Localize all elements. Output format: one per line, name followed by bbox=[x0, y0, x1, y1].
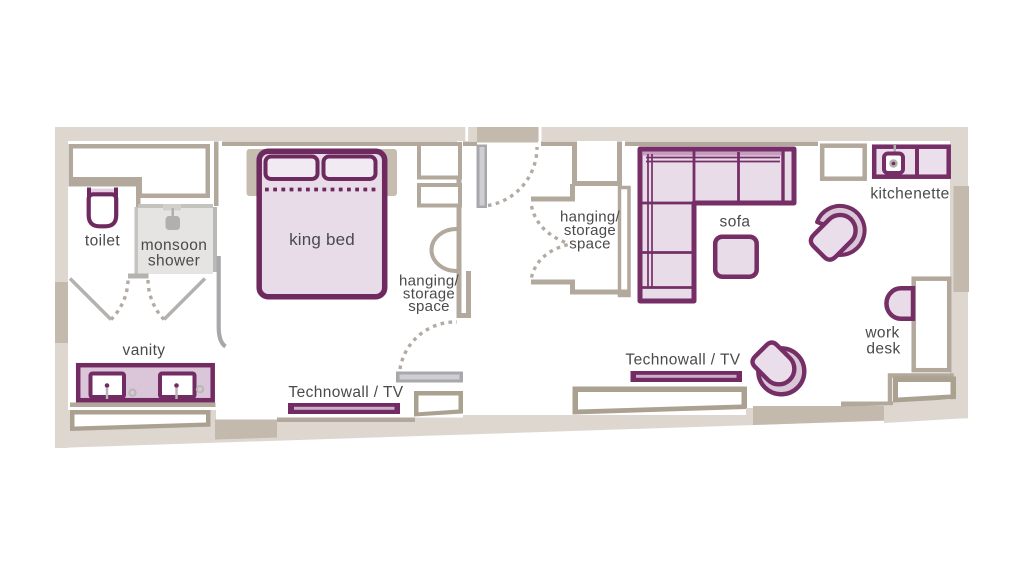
svg-text:monsoon: monsoon bbox=[141, 237, 208, 254]
svg-text:space: space bbox=[569, 236, 611, 253]
svg-text:vanity: vanity bbox=[123, 342, 166, 359]
svg-text:shower: shower bbox=[148, 253, 200, 270]
svg-text:Technowall / TV: Technowall / TV bbox=[288, 384, 403, 401]
svg-text:king bed: king bed bbox=[289, 230, 355, 249]
svg-text:sofa: sofa bbox=[720, 214, 751, 231]
svg-text:Technowall / TV: Technowall / TV bbox=[625, 352, 740, 369]
svg-text:kitchenette: kitchenette bbox=[870, 186, 949, 203]
svg-text:work: work bbox=[864, 325, 899, 342]
svg-text:desk: desk bbox=[866, 341, 900, 358]
svg-text:space: space bbox=[408, 298, 450, 315]
svg-text:toilet: toilet bbox=[85, 233, 120, 250]
